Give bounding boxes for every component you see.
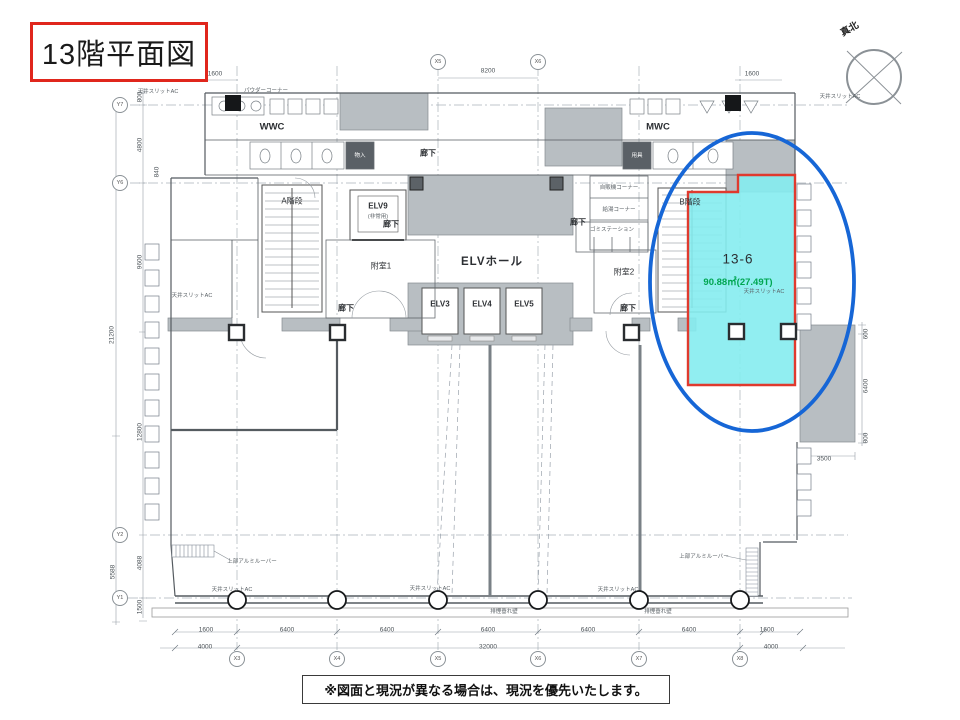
dimension-label: 4088 (137, 556, 144, 570)
annotation-label: 天井スリットAC (410, 584, 451, 592)
room-label-elv5: ELV5 (514, 300, 533, 309)
dimension-label: 5588 (110, 565, 117, 579)
corridor-label: 廊下 (420, 148, 436, 159)
dimension-label: 6400 (682, 627, 696, 634)
dimension-label: 4000 (198, 644, 212, 651)
annotation-label: 天井スリットAC (820, 92, 861, 100)
dimension-label: 6400 (380, 627, 394, 634)
dimension-label: 600 (863, 329, 870, 340)
dimension-label: 9600 (137, 255, 144, 269)
dimension-label: 8200 (481, 68, 495, 75)
label-overlay: 13階平面図 真北 ※図面と現況が異なる場合は、現況を優先いたします。 A階段 … (0, 0, 960, 720)
room-label-stair-b: B階段 (679, 197, 700, 208)
room-label-vending: 自販機コーナー (600, 183, 639, 191)
room-label-yogu: 用具 (631, 151, 642, 159)
annotation-label: 天井スリットAC (138, 87, 179, 95)
room-label-fushitsu2: 附室2 (614, 267, 634, 278)
grid-axis-label-y: Y1 (112, 590, 128, 606)
corridor-label: 廊下 (383, 219, 399, 230)
corridor-label: 廊下 (620, 303, 636, 314)
room-label-kyuto: 給湯コーナー (602, 205, 635, 213)
room-label-powder: パウダーコーナー (244, 86, 288, 94)
dimension-label: 3500 (817, 456, 831, 463)
grid-axis-label-x: X5 (430, 54, 446, 70)
grid-axis-label-x: X7 (631, 651, 647, 667)
grid-axis-label-y: Y6 (112, 175, 128, 191)
corridor-label: 廊下 (338, 303, 354, 314)
dimension-label: 4000 (764, 644, 778, 651)
grid-axis-label-x: X3 (229, 651, 245, 667)
dimension-label: 800 (863, 433, 870, 444)
dimension-label: 12800 (137, 423, 144, 441)
room-label-elv-hall: ELVホール (461, 253, 523, 269)
dimension-label: 32000 (479, 644, 497, 651)
dimension-label: 840 (154, 167, 161, 178)
dimension-label: 4800 (137, 138, 144, 152)
floor-plan-page: 13階平面図 真北 ※図面と現況が異なる場合は、現況を優先いたします。 A階段 … (0, 0, 960, 720)
highlight-room-area: 90.88㎡(27.49T) (703, 274, 772, 288)
room-label-gomi: ゴミステーション (590, 225, 634, 233)
dimension-label: 1600 (199, 627, 213, 634)
room-label-wwc: WWC (260, 122, 285, 133)
grid-axis-label-x: X5 (430, 651, 446, 667)
annotation-label: 天井スリットAC (212, 585, 253, 593)
grid-axis-label-x: X6 (530, 651, 546, 667)
annotation-label: 排煙垂れ壁 (644, 607, 672, 615)
grid-axis-label-x: X8 (732, 651, 748, 667)
grid-axis-label-y: Y2 (112, 527, 128, 543)
room-label-stair-a: A階段 (281, 196, 302, 207)
annotation-label: 排煙垂れ壁 (490, 607, 518, 615)
dimension-label: 6400 (280, 627, 294, 634)
dimension-label: 1500 (137, 600, 144, 614)
dimension-label: 1600 (760, 627, 774, 634)
disclaimer-note: ※図面と現況が異なる場合は、現況を優先いたします。 (302, 675, 670, 704)
corridor-label: 廊下 (570, 217, 586, 228)
room-label-fushitsu1: 附室1 (371, 261, 391, 272)
room-label-elv4: ELV4 (472, 300, 491, 309)
room-label-elv9: ELV9 (368, 202, 387, 211)
grid-axis-label-x: X4 (329, 651, 345, 667)
dimension-label: 6400 (581, 627, 595, 634)
dimension-label: 1600 (745, 71, 759, 78)
room-label-monoire: 物入 (354, 151, 365, 159)
annotation-label: 天井スリットAC (744, 287, 785, 295)
dimension-label: 21200 (109, 326, 116, 344)
drawing-title: 13階平面図 (30, 22, 208, 82)
grid-axis-label-y: Y7 (112, 97, 128, 113)
annotation-label: 天井スリットAC (172, 291, 213, 299)
annotation-label: 天井スリットAC (598, 585, 639, 593)
louver-label-left: 上部アルミルーバー (227, 557, 276, 565)
true-north-label: 真北 (837, 17, 860, 39)
dimension-label: 1600 (208, 71, 222, 78)
room-label-mwc: MWC (646, 122, 670, 133)
highlight-room-number: 13-6 (722, 252, 753, 267)
dimension-label: 6400 (863, 379, 870, 393)
room-label-elv3: ELV3 (430, 300, 449, 309)
dimension-label: 6400 (481, 627, 495, 634)
grid-axis-label-x: X6 (530, 54, 546, 70)
louver-label-right: 上部アルミルーバー (679, 552, 728, 560)
